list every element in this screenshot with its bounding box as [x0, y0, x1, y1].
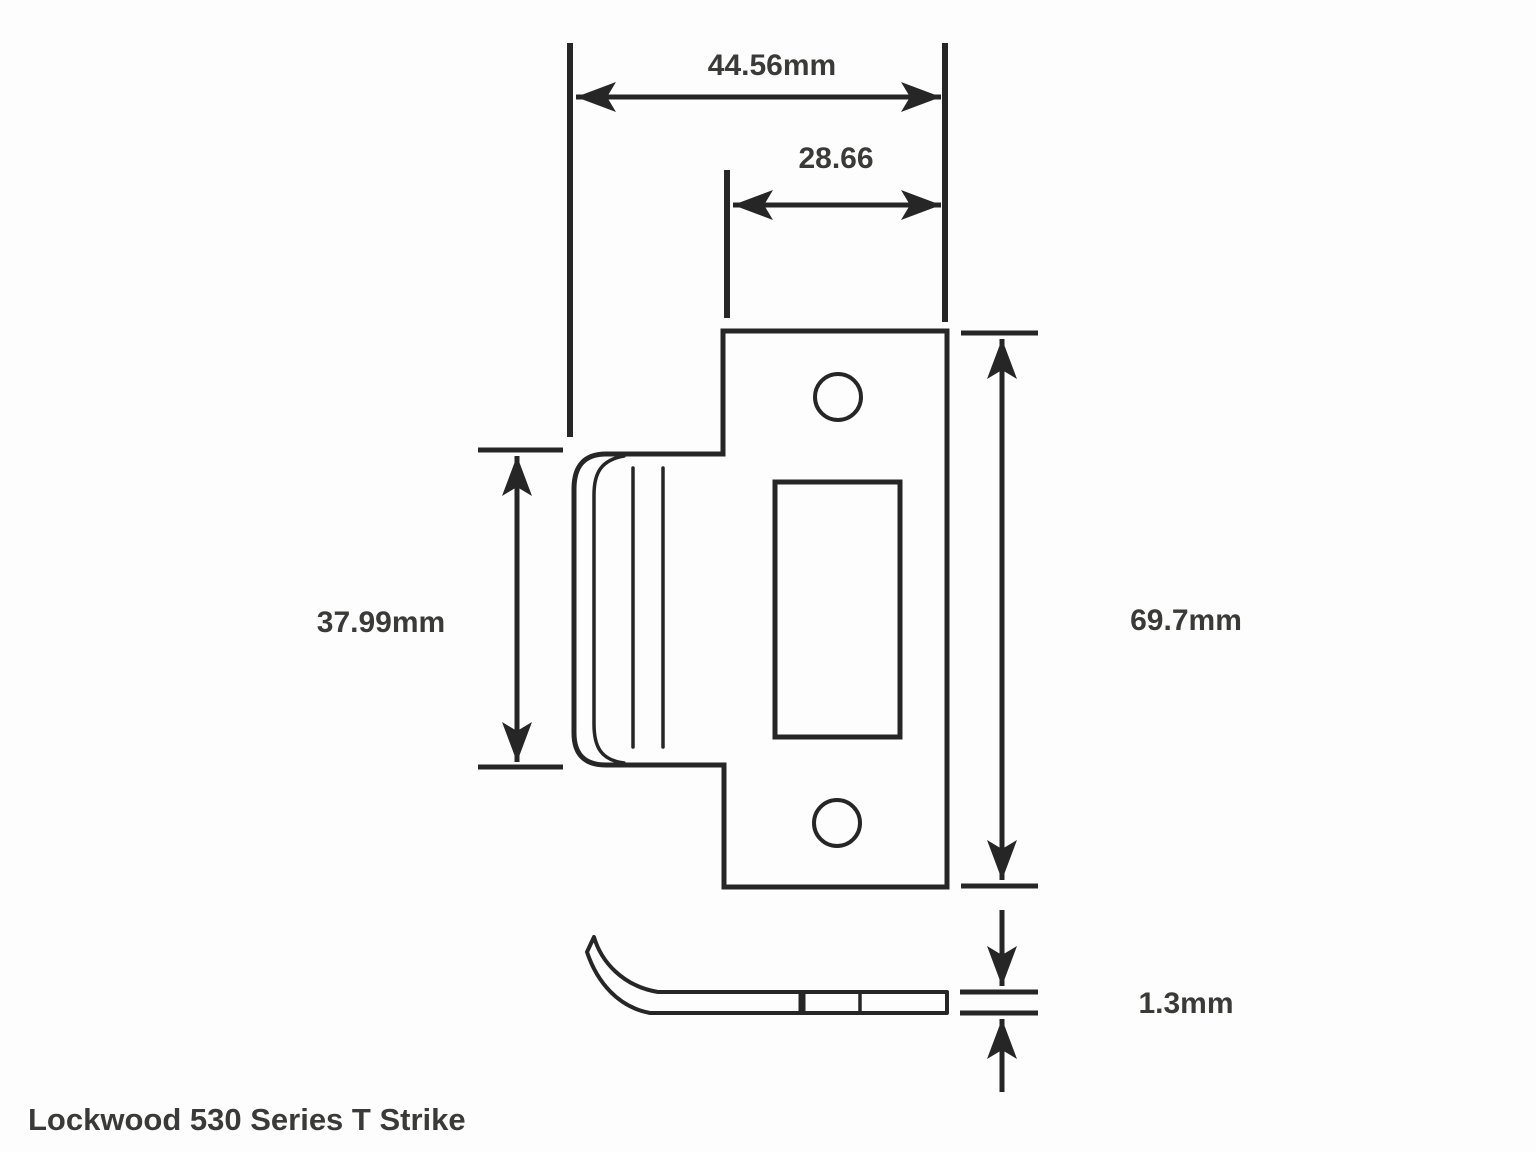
screw-hole-bottom: [814, 800, 860, 846]
tab-inner-contour: [594, 456, 624, 763]
t-strike-dimension-diagram: 44.56mm 28.66 37.99mm 69.7mm 1.3mm Lockw…: [0, 0, 1536, 1152]
dim-label-opening-width: 28.66: [798, 142, 873, 175]
drawing-title: Lockwood 530 Series T Strike: [28, 1102, 466, 1137]
screw-hole-top: [815, 374, 861, 420]
latch-cutout: [775, 482, 900, 737]
technical-drawing-page: 44.56mm 28.66 37.99mm 69.7mm 1.3mm Lockw…: [0, 0, 1536, 1152]
side-profile: [587, 937, 947, 1013]
dim-label-thickness: 1.3mm: [1138, 987, 1233, 1020]
strike-plate-outline: [574, 331, 947, 887]
dim-label-plate-height: 69.7mm: [1130, 604, 1242, 637]
dim-label-overall-width: 44.56mm: [708, 49, 836, 82]
dim-label-tab-height: 37.99mm: [317, 606, 445, 639]
